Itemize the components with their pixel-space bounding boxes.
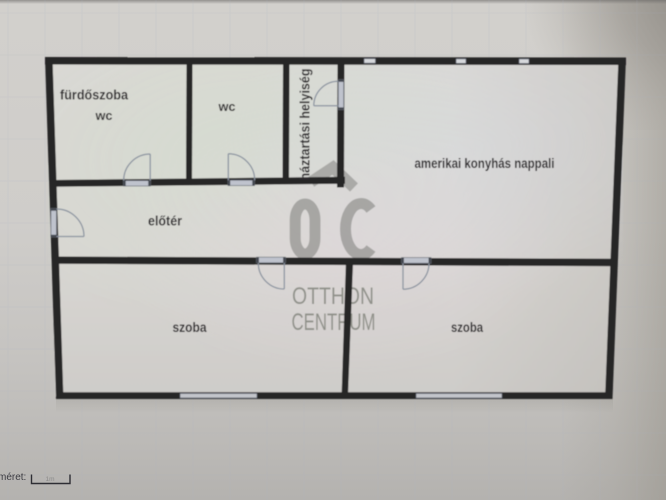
svg-text:előtér: előtér [148, 213, 182, 229]
svg-text:CENTRUM: CENTRUM [292, 309, 376, 336]
svg-text:1m: 1m [45, 476, 54, 483]
svg-text:wc: wc [218, 99, 236, 114]
svg-text:méret:: méret: [0, 472, 26, 483]
svg-text:háztartási helyiség: háztartási helyiség [298, 69, 313, 181]
svg-text:szoba: szoba [451, 320, 483, 335]
svg-text:amerikai konyhás nappali: amerikai konyhás nappali [415, 156, 555, 171]
svg-text:fürdőszoba: fürdőszoba [60, 88, 128, 103]
svg-text:szoba: szoba [173, 320, 207, 335]
svg-text:OTTHON: OTTHON [292, 283, 374, 310]
svg-text:wc: wc [95, 108, 113, 123]
